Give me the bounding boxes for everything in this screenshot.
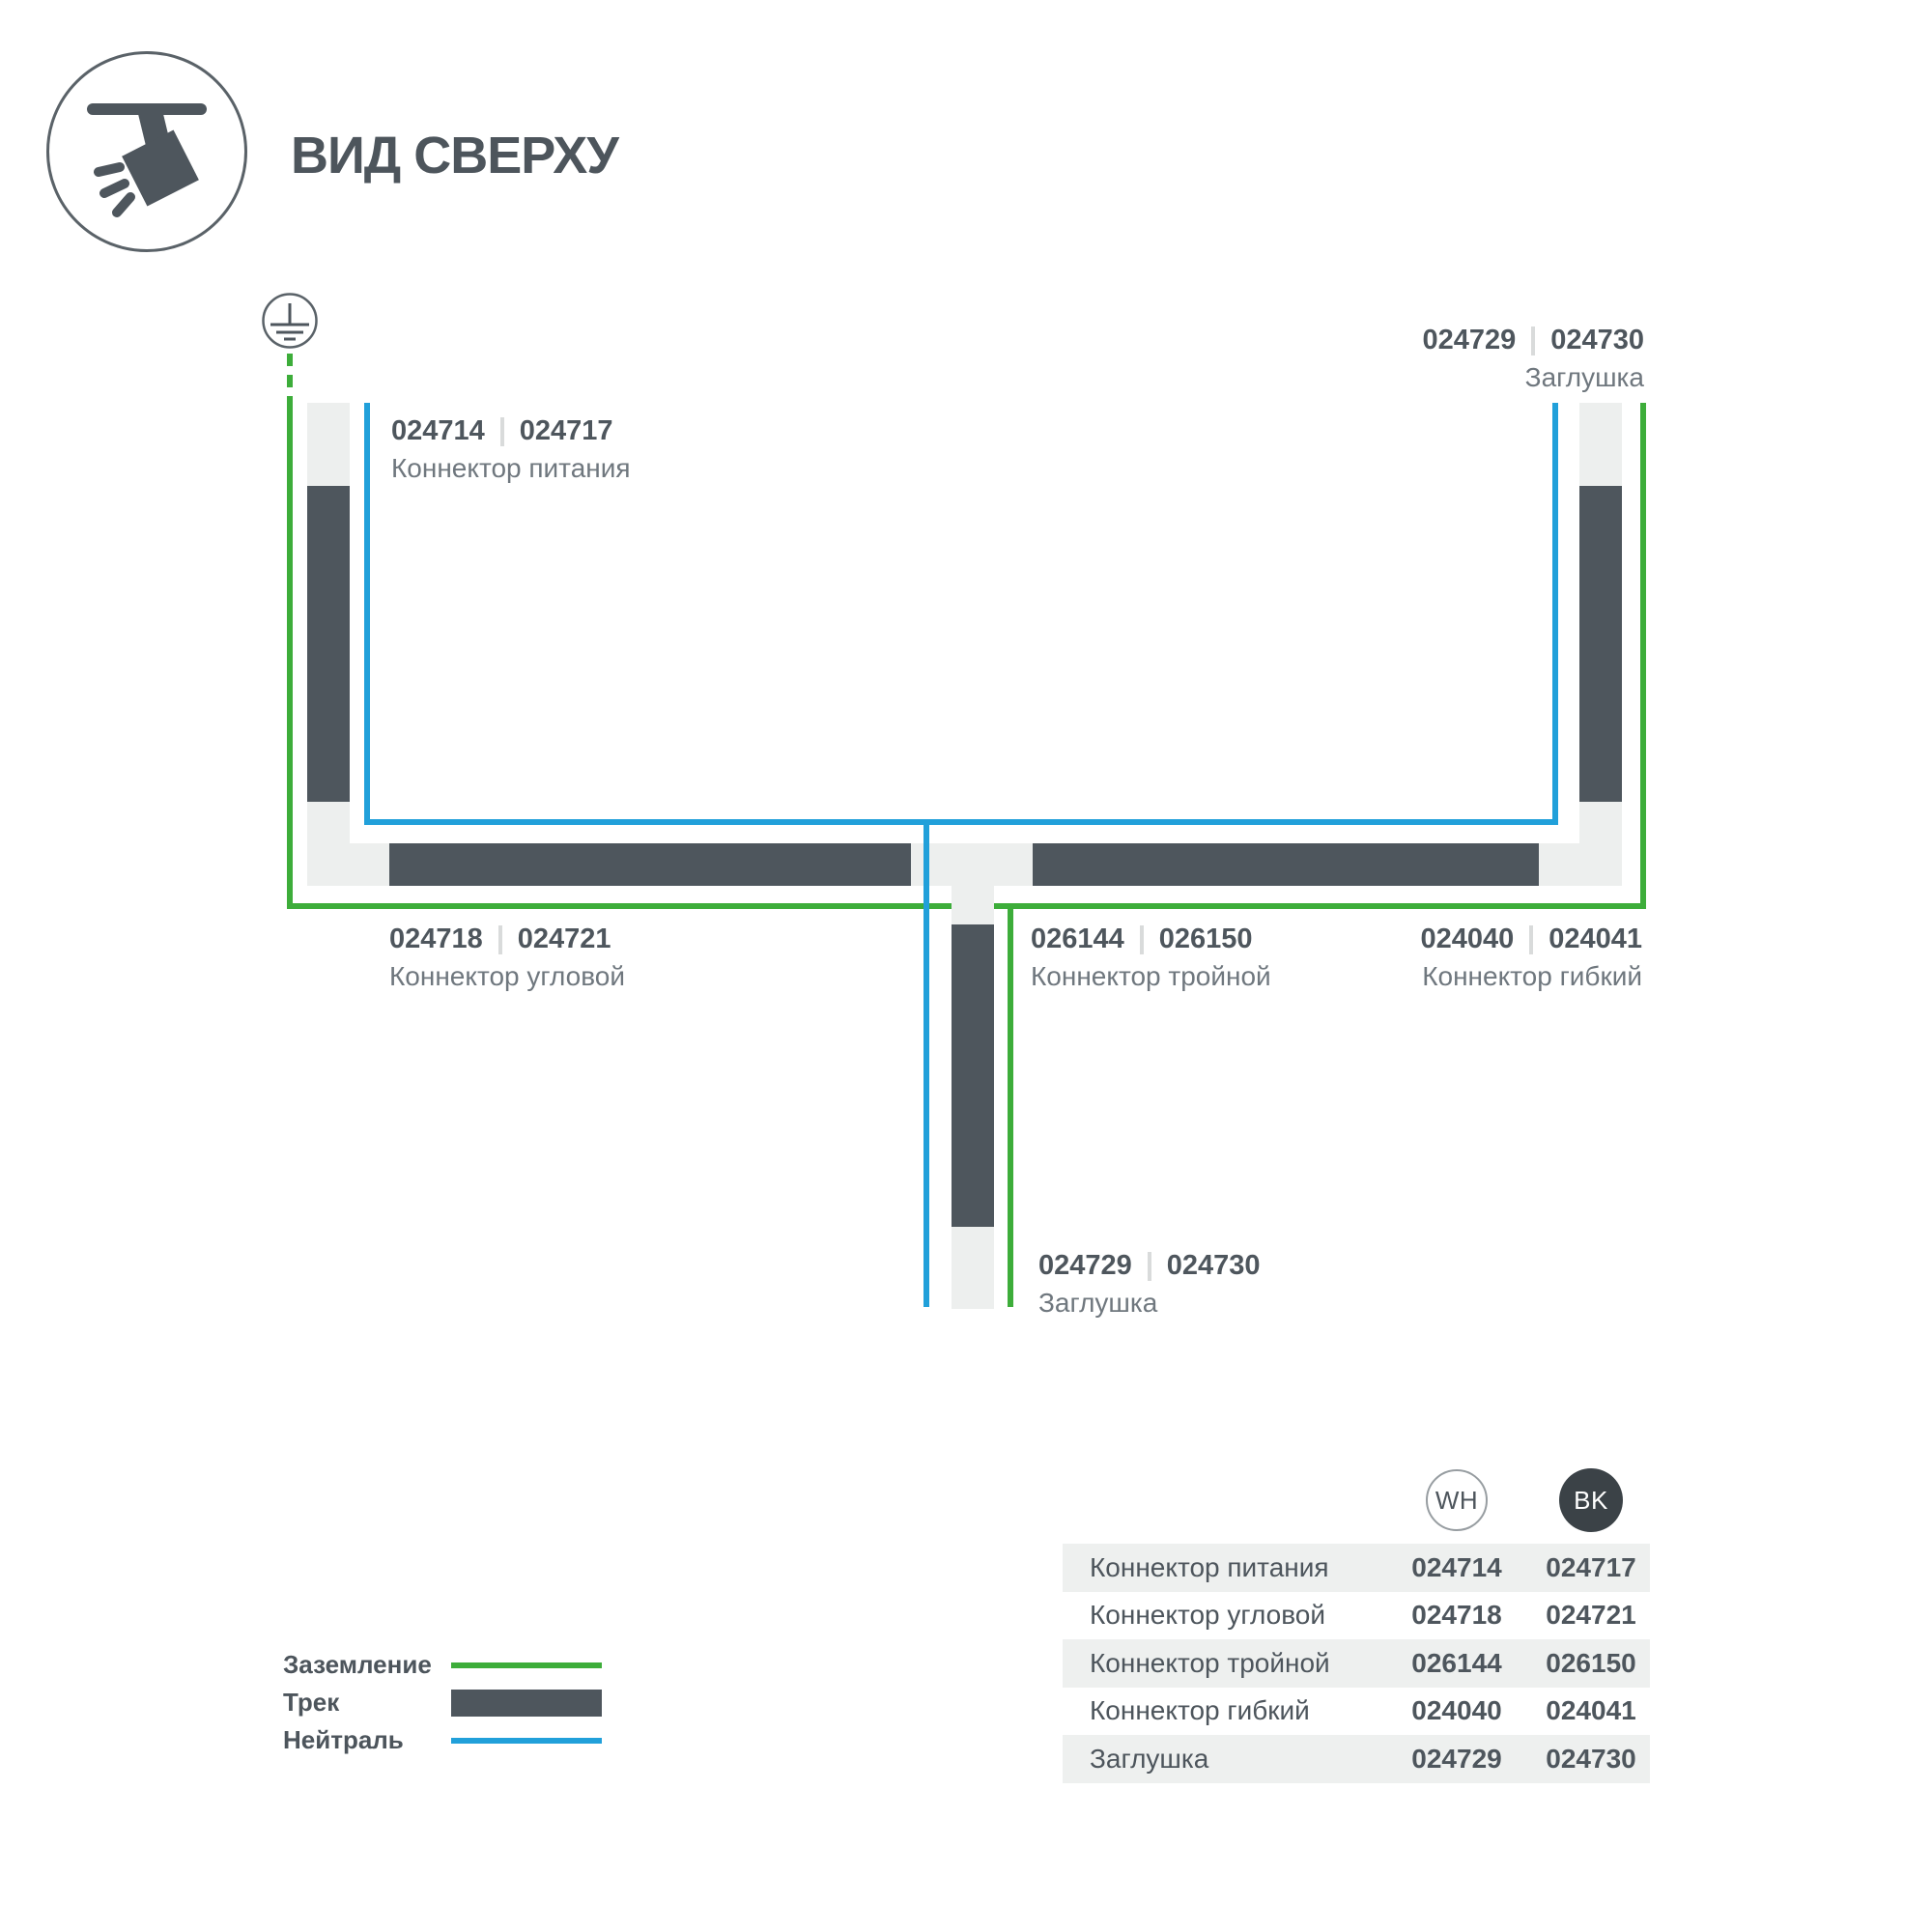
page-title: ВИД СВЕРХУ [291, 126, 618, 185]
part-name: Коннектор питания [391, 453, 631, 484]
part-name: Коннектор тройной [1031, 961, 1271, 992]
column-badge-black: BK [1559, 1468, 1623, 1532]
triple-connector-neck [952, 886, 994, 924]
row-code-wh: 024718 [1404, 1600, 1510, 1631]
ground-wire-left [287, 403, 293, 909]
row-code-bk: 024041 [1538, 1695, 1644, 1726]
code-bk: 024041 [1548, 923, 1642, 955]
row-code-bk: 024717 [1538, 1552, 1644, 1583]
code-bk: 024730 [1550, 325, 1644, 356]
code-separator [1529, 925, 1533, 954]
code-separator [498, 925, 502, 954]
row-name: Коннектор гибкий [1063, 1695, 1376, 1726]
ground-wire-stem [1008, 906, 1013, 1307]
legend-item-ground: Заземление [283, 1646, 602, 1684]
endcap-bottom-piece [952, 1227, 994, 1309]
table-row: Заглушка 024729 024730 [1063, 1735, 1650, 1783]
row-code-bk: 024721 [1538, 1600, 1644, 1631]
code-wh: 026144 [1031, 923, 1124, 955]
track-left-vertical [307, 486, 350, 802]
neutral-line-swatch [451, 1738, 602, 1744]
flexible-connector-horizontal [1539, 843, 1579, 886]
corner-connector-left-vertical [307, 802, 350, 886]
row-code-wh: 024040 [1404, 1695, 1510, 1726]
track-stem [952, 924, 994, 1227]
ground-wire-dashed [287, 354, 293, 403]
legend-label: Заземление [283, 1650, 451, 1680]
track-right-vertical [1579, 486, 1622, 802]
row-code-wh: 024714 [1404, 1552, 1510, 1583]
row-code-wh: 024729 [1404, 1744, 1510, 1775]
row-code-wh: 026144 [1404, 1648, 1510, 1679]
part-name: Заглушка [1038, 1288, 1261, 1319]
legend-label: Трек [283, 1688, 451, 1718]
neutral-wire-left [364, 403, 370, 825]
part-name: Заглушка [1525, 362, 1644, 393]
label-endcap-bottom: 024729 024730 Заглушка [1038, 1250, 1261, 1319]
code-bk: 024730 [1167, 1250, 1261, 1282]
part-name: Коннектор угловой [389, 961, 625, 992]
ground-wire-bottom-left [287, 903, 952, 909]
code-bk: 026150 [1159, 923, 1253, 955]
ground-wire-right [1640, 403, 1646, 909]
code-separator [1140, 925, 1144, 954]
endcap-top-piece [1579, 403, 1622, 486]
legend-item-track: Трек [283, 1684, 602, 1721]
column-badge-white: WH [1426, 1469, 1488, 1531]
label-triple-connector: 026144 026150 Коннектор тройной [1031, 923, 1271, 992]
table-row: Коннектор тройной 026144 026150 [1063, 1639, 1650, 1688]
row-name: Коннектор тройной [1063, 1648, 1376, 1679]
row-name: Коннектор питания [1063, 1552, 1376, 1583]
neutral-wire-stem [923, 822, 929, 1307]
legend-label: Нейтраль [283, 1725, 451, 1755]
code-wh: 024718 [389, 923, 483, 955]
code-separator [1148, 1252, 1151, 1281]
label-endcap-top: 024729 024730 Заглушка [1422, 325, 1644, 393]
track-horizontal-left [389, 843, 911, 886]
row-name: Коннектор угловой [1063, 1600, 1376, 1631]
table-row: Коннектор питания 024714 024717 [1063, 1544, 1650, 1592]
ground-icon [261, 292, 319, 350]
code-wh: 024729 [1038, 1250, 1132, 1282]
neutral-wire-horizontal [364, 819, 1558, 825]
power-connector-piece [307, 403, 350, 486]
code-bk: 024717 [520, 415, 613, 447]
table-row: Коннектор угловой 024718 024721 [1063, 1592, 1650, 1640]
code-separator [500, 417, 504, 446]
table-row: Коннектор гибкий 024040 024041 [1063, 1688, 1650, 1736]
parts-table: Коннектор питания 024714 024717 Коннекто… [1063, 1544, 1650, 1783]
spotlight-icon-graphic [49, 54, 244, 249]
track-horizontal-right [1033, 843, 1539, 886]
label-corner-connector: 024718 024721 Коннектор угловой [389, 923, 625, 992]
label-power-connector: 024714 024717 Коннектор питания [391, 415, 631, 484]
part-name: Коннектор гибкий [1422, 961, 1642, 992]
label-flexible-connector: 024040 024041 Коннектор гибкий [1420, 923, 1642, 992]
neutral-wire-right [1552, 403, 1558, 825]
legend-item-neutral: Нейтраль [283, 1721, 602, 1759]
track-layout-diagram: ВИД СВЕРХУ [0, 0, 1932, 1932]
ground-wire-bottom-right [994, 903, 1646, 909]
track-bar-swatch [451, 1690, 602, 1717]
code-separator [1531, 327, 1535, 355]
flexible-connector-vertical [1579, 802, 1622, 886]
top-view-spotlight-icon [46, 51, 247, 252]
corner-connector-left-horizontal [350, 843, 389, 886]
code-wh: 024729 [1422, 325, 1516, 356]
row-code-bk: 026150 [1538, 1648, 1644, 1679]
ground-line-swatch [451, 1662, 602, 1668]
row-name: Заглушка [1063, 1744, 1376, 1775]
code-wh: 024040 [1420, 923, 1514, 955]
legend: Заземление Трек Нейтраль [283, 1646, 602, 1759]
code-wh: 024714 [391, 415, 485, 447]
code-bk: 024721 [518, 923, 611, 955]
row-code-bk: 024730 [1538, 1744, 1644, 1775]
